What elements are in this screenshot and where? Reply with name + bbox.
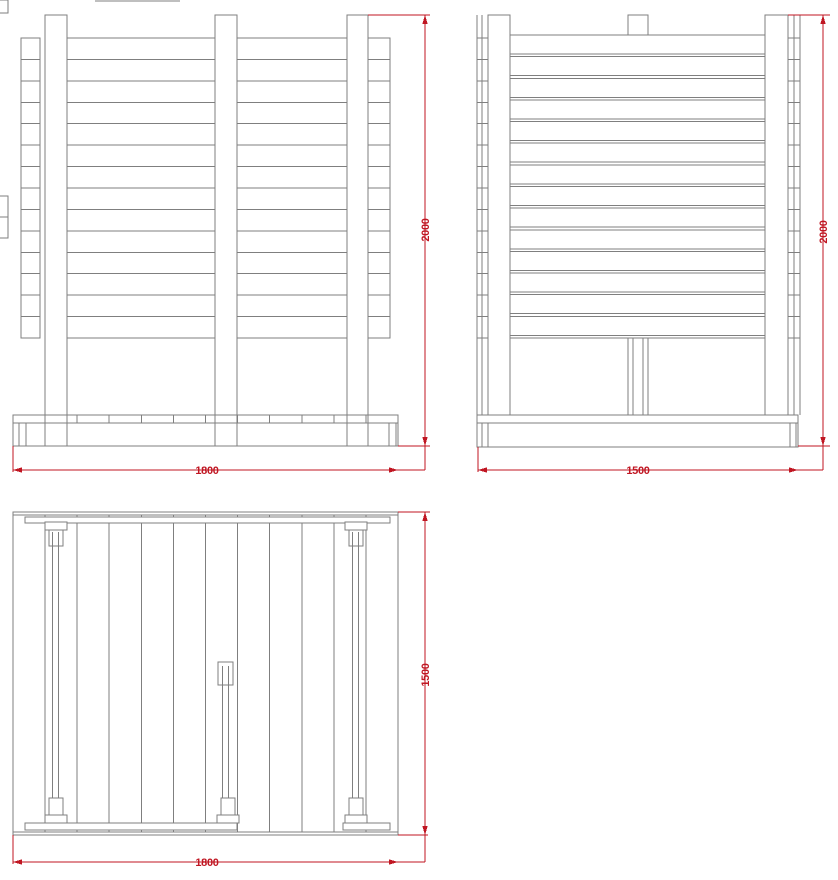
side-posts xyxy=(488,15,788,415)
side-height-dim-label: 2000 xyxy=(818,220,830,243)
side-width-dim-label: 1500 xyxy=(626,465,649,477)
side-slat-field xyxy=(510,35,765,338)
plan-top-rail xyxy=(25,517,390,523)
plan-view: 1500 1800 xyxy=(13,512,432,869)
plan-post-middle xyxy=(217,662,239,823)
front-elevation-view: 2000 1800 xyxy=(0,0,432,477)
plan-bottom-rail-left xyxy=(25,823,237,830)
front-post-left xyxy=(45,15,67,446)
front-dimensions: 2000 1800 xyxy=(13,15,432,477)
side-post-back xyxy=(765,15,788,415)
drawing-sheet: 2000 1800 xyxy=(0,0,838,880)
plan-post-right xyxy=(345,522,367,823)
side-post-middle-bottom xyxy=(628,338,648,415)
plan-bottom-rail-right xyxy=(343,823,390,830)
side-elevation-view: 2000 1500 xyxy=(477,15,830,477)
front-width-dim-label: 1800 xyxy=(195,465,218,477)
front-post-right xyxy=(347,15,368,446)
side-post-middle-top xyxy=(628,15,648,35)
side-back-fence-edge xyxy=(788,15,800,415)
front-left-side-panel-edge xyxy=(21,38,40,338)
plan-depth-dim-label: 1500 xyxy=(420,663,432,686)
front-slat-field-left xyxy=(67,38,215,338)
side-base-platform xyxy=(477,415,798,447)
side-dimensions: 2000 1500 xyxy=(478,15,830,477)
plan-width-dim-label: 1800 xyxy=(195,857,218,869)
side-front-fence-edge xyxy=(477,15,488,415)
edge-fragments xyxy=(0,0,180,238)
plan-post-left xyxy=(45,522,67,823)
front-height-dim-label: 2000 xyxy=(420,218,432,241)
front-slat-field-right xyxy=(237,38,347,338)
cad-drawing-canvas: 2000 1800 xyxy=(0,0,838,880)
front-right-side-panel-edge xyxy=(368,38,390,338)
front-base-platform xyxy=(13,415,398,446)
front-post-middle xyxy=(215,15,237,446)
side-post-front xyxy=(488,15,510,415)
plan-deck-planks xyxy=(45,515,366,832)
